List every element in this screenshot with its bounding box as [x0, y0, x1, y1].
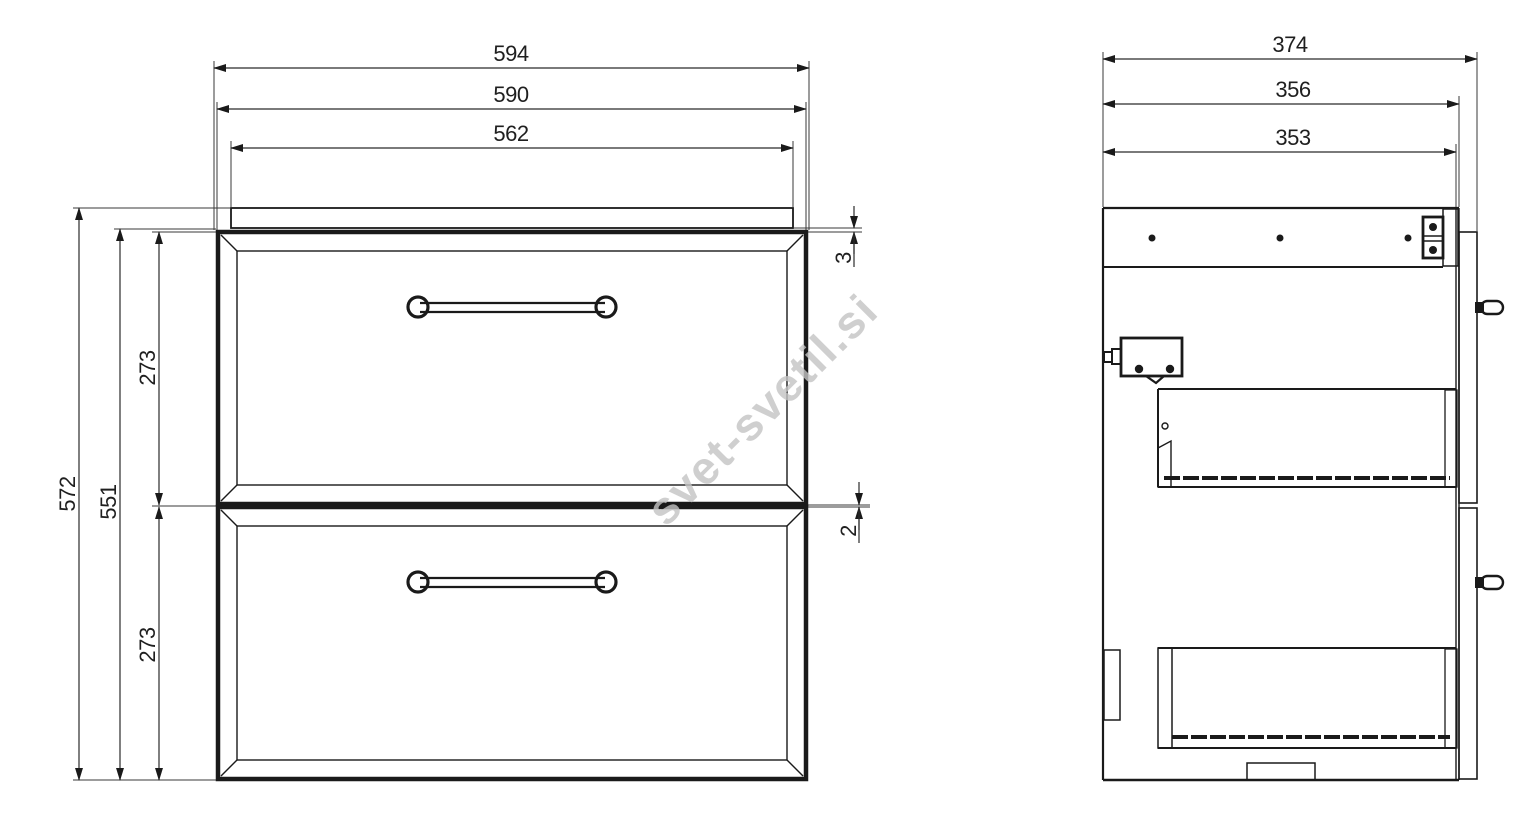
- bevel-corner: [221, 235, 237, 251]
- bracket-screw: [1166, 365, 1174, 373]
- dim-label-inner-depth: 353: [1275, 125, 1310, 150]
- technical-drawing-page: 594 590 562 572 551 273 273 3 2: [0, 0, 1532, 816]
- upper-drawer-front-section: [1459, 232, 1477, 503]
- bracket-tab: [1104, 352, 1112, 362]
- back-panel-section-block: [1104, 650, 1120, 720]
- front-cabinet: [218, 208, 806, 779]
- dim-label-cabinet-depth: 356: [1275, 77, 1310, 102]
- drawer-hole: [1162, 423, 1168, 429]
- knob-lower: [1475, 576, 1503, 589]
- fitting-screw: [1429, 246, 1437, 254]
- top-rail: [1103, 209, 1458, 267]
- bevel-corner: [787, 760, 803, 776]
- dim-label-gap3: 3: [831, 252, 856, 264]
- bevel-corner: [221, 485, 237, 501]
- handle-end-cap: [408, 297, 428, 317]
- drawer-back-section: [1158, 648, 1172, 748]
- dim-label-gap2: 2: [836, 525, 861, 537]
- drawer-lower-outer-edge: [218, 507, 806, 779]
- rail-end-fitting: [1423, 217, 1443, 258]
- drawer-handle-upper: [408, 297, 616, 317]
- drawer-front-joint-section: [1445, 390, 1457, 487]
- lower-drawer-box: [1158, 648, 1457, 748]
- dim-label-upper-drawer-height: 273: [135, 350, 160, 385]
- dim-label-overall-height: 572: [55, 476, 80, 511]
- dim-label-overall-width: 594: [493, 41, 528, 66]
- bevel-corner: [221, 760, 237, 776]
- knob-upper: [1475, 301, 1503, 314]
- fitting-screw: [1429, 223, 1437, 231]
- side-cabinet: [1103, 208, 1503, 780]
- wall-bracket: [1104, 338, 1182, 383]
- dim-label-countertop-width: 562: [493, 121, 528, 146]
- handle-end-cap: [408, 572, 428, 592]
- bracket-screw: [1135, 365, 1143, 373]
- handle-end-cap: [596, 297, 616, 317]
- knob-grip: [1481, 576, 1503, 589]
- cabinet-technical-drawing: 594 590 562 572 551 273 273 3 2: [0, 0, 1532, 816]
- drawer-handle-lower: [408, 572, 616, 592]
- bevel-corner: [787, 485, 803, 501]
- lower-drawer-front-section: [1459, 508, 1477, 779]
- countertop: [231, 208, 793, 228]
- drawer-front-lower: [218, 507, 806, 779]
- drawer-front-joint-section: [1445, 649, 1457, 748]
- bottom-plinth-section: [1247, 763, 1315, 780]
- bevel-corner: [221, 510, 237, 526]
- dim-label-cabinet-width: 590: [493, 82, 528, 107]
- rail-hole: [1277, 235, 1284, 242]
- rail-hole: [1149, 235, 1156, 242]
- drawer-back-section: [1158, 441, 1171, 487]
- bevel-corner: [787, 510, 803, 526]
- knob-grip: [1481, 301, 1503, 314]
- rail-hole: [1405, 235, 1412, 242]
- side-view: 374 356 353: [1103, 32, 1503, 780]
- dim-label-front-height: 551: [96, 484, 121, 519]
- drawer-lower-bevel-inner: [237, 526, 787, 760]
- watermark: svet-svetil.si: [636, 283, 888, 535]
- dim-label-lower-drawer-height: 273: [135, 627, 160, 662]
- bevel-corner: [787, 235, 803, 251]
- handle-end-cap: [596, 572, 616, 592]
- upper-drawer-box: [1158, 389, 1457, 487]
- dim-label-overall-depth: 374: [1272, 32, 1307, 57]
